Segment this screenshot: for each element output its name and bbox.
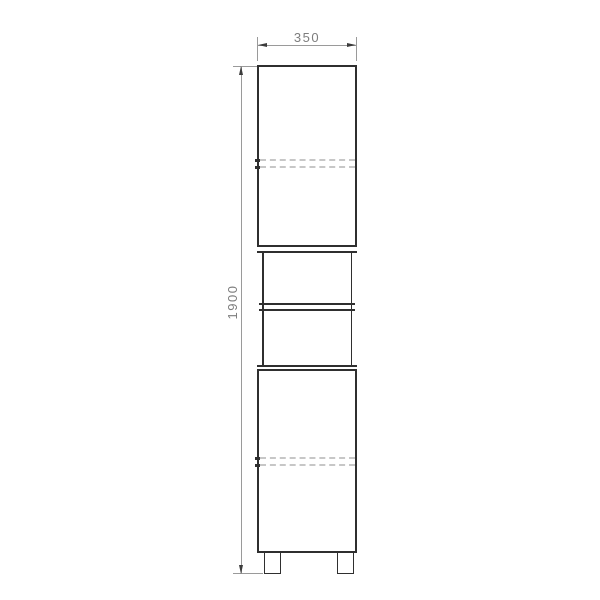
height-arrow-top-icon (239, 66, 243, 75)
height-dimension-line (241, 66, 242, 573)
height-extension-line-bottom (233, 573, 263, 574)
lower-hinge-mark-2 (255, 464, 260, 467)
lower-hidden-shelf-line-2 (260, 464, 355, 466)
middle-shelf-top-line (259, 303, 355, 305)
technical-drawing-canvas: 350 1900 (0, 0, 600, 600)
upper-hidden-shelf-line-2 (260, 166, 355, 168)
lower-hinge-mark-1 (255, 457, 260, 460)
left-leg (264, 553, 281, 574)
upper-hinge-mark-2 (255, 166, 260, 169)
width-dimension-label: 350 (257, 31, 357, 45)
upper-hidden-shelf-line-1 (260, 159, 355, 161)
right-leg (337, 553, 354, 574)
lower-door (257, 369, 357, 553)
compartment-bottom-edge (257, 365, 357, 367)
lower-hidden-shelf-line-1 (260, 457, 355, 459)
upper-door (257, 65, 357, 247)
height-extension-line-top (233, 66, 257, 67)
height-dimension-label: 1900 (226, 280, 240, 324)
compartment-top-edge (257, 251, 357, 253)
width-dimension-line (258, 45, 356, 46)
middle-shelf-bottom-line (259, 309, 355, 311)
height-arrow-bottom-icon (239, 565, 243, 574)
upper-hinge-mark-1 (255, 159, 260, 162)
